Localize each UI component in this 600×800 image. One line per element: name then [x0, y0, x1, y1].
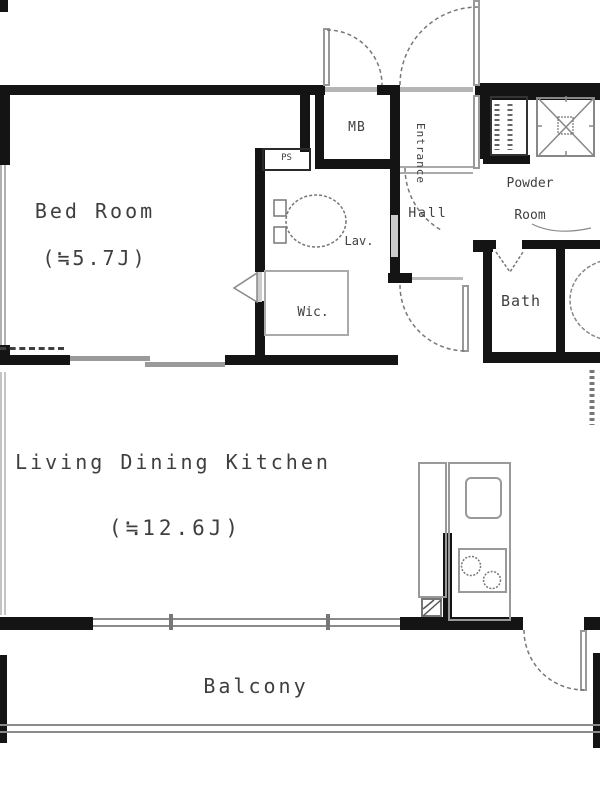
wall-top-left-stub [0, 0, 8, 12]
sliding-door-panel-1 [70, 356, 150, 361]
wall-divider-east [225, 355, 398, 365]
storage-box [490, 96, 528, 156]
hall-label: Hall [398, 206, 458, 221]
sliding-door-panel-2 [145, 362, 225, 367]
bedroom-west-window [0, 165, 6, 345]
window-mullion-1 [169, 614, 173, 630]
bathtub [570, 259, 600, 341]
wall-balcony-right [593, 653, 600, 748]
kitchen-stove-box [458, 548, 507, 593]
bedroom-dashed-beam [0, 347, 64, 350]
wall-bath-east [556, 249, 565, 352]
wic-door-sill [256, 272, 262, 302]
wall-bath-bottom [483, 352, 600, 363]
wall-alcove-stub [300, 95, 310, 152]
bedroom-label: Bed Room [10, 199, 180, 223]
washer-pan-box [536, 97, 595, 157]
wall-storage-bottom [483, 155, 530, 164]
window-mullion-2 [326, 614, 330, 630]
balcony-door-arc [524, 630, 584, 690]
hall-door-leaf [462, 285, 469, 352]
floor-plan: Bed Room (≒5.7J) Living Dining Kitchen (… [0, 0, 600, 800]
wall-mb-bottom [315, 159, 400, 169]
genkan-step-line-1 [400, 166, 473, 168]
kitchen-ps-box [421, 598, 442, 617]
entrance-label: Entrance [414, 103, 427, 203]
wall-ldk-bottom-a [0, 617, 93, 630]
wic-shelf-outline [264, 270, 349, 336]
hall-door-arc [400, 285, 466, 351]
ps-label: PS [262, 153, 311, 163]
wall-nook-top [388, 273, 412, 283]
nook-door-sill [412, 277, 463, 280]
wall-left-upper [0, 95, 10, 165]
powder-door-leaf [473, 95, 480, 169]
bath-fold-door [496, 252, 523, 272]
entrance-door-arc [400, 7, 478, 85]
wic-label: Wic. [285, 305, 341, 320]
wic-door-triangle [234, 273, 257, 302]
lav-label: Lav. [336, 234, 382, 248]
entrance-door-sill [400, 87, 473, 92]
wall-ldk-bottom-c [584, 617, 600, 630]
wall-top-a [0, 85, 325, 95]
wall-divider-west [0, 355, 70, 365]
kitchen-sink [465, 477, 502, 519]
entrance-door-leaf [473, 0, 480, 86]
ldk-size-label: (≒12.6J) [58, 516, 293, 540]
ldk-west-window [0, 372, 6, 615]
mb-door-arc [327, 30, 382, 85]
toilet-tank-top [274, 200, 286, 216]
ldk-south-window [93, 618, 400, 627]
balcony-door-leaf [580, 630, 587, 691]
ldk-label: Living Dining Kitchen [3, 450, 343, 474]
toilet-tank-bottom [274, 227, 286, 243]
lav-door-sill [391, 215, 398, 257]
bedroom-size-label: (≒5.7J) [10, 246, 180, 270]
wall-top-b [377, 85, 400, 95]
wall-storage-left [480, 93, 490, 159]
wall-bath-top-a [483, 240, 496, 249]
balcony-railing [0, 724, 600, 733]
mb-door-sill [325, 87, 377, 92]
mb-label: MB [322, 120, 392, 135]
balcony-label: Balcony [150, 674, 362, 698]
fridge-space-outline [418, 462, 447, 598]
powder-room-label: Powder Room [487, 168, 573, 232]
bath-label: Bath [488, 292, 554, 310]
mb-door-leaf [323, 28, 330, 86]
genkan-step-line-2 [400, 172, 473, 174]
wall-bath-top-b [522, 240, 600, 249]
